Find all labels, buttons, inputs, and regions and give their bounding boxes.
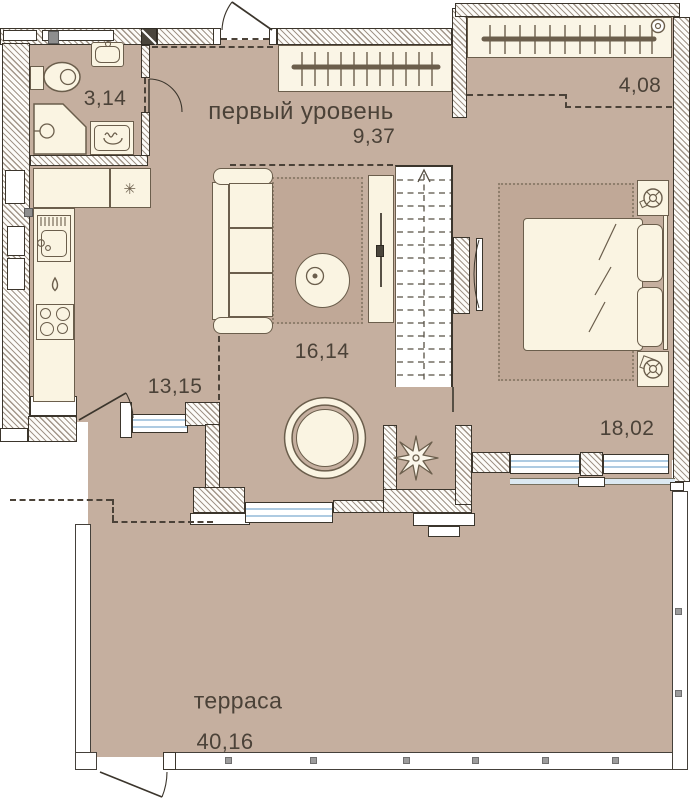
railing-post	[612, 757, 619, 764]
zone-boundary-dashed	[152, 46, 273, 48]
sofa-icon	[213, 317, 273, 334]
door-jamb	[120, 402, 132, 438]
nightstand-icon	[637, 351, 669, 387]
shaft-box	[7, 226, 25, 256]
door-jamb	[269, 28, 277, 45]
wall	[453, 237, 470, 314]
wall	[141, 112, 150, 156]
sink-bowl	[41, 230, 67, 257]
washer-inner	[94, 125, 130, 151]
toilet-tank	[30, 66, 44, 90]
nightstand-icon	[637, 180, 669, 216]
wall	[277, 28, 452, 45]
entry-door-swing-icon	[222, 2, 272, 30]
floor-plan: первый уровень 9,37 3,14 4,08 16,14 13,1…	[0, 0, 694, 800]
zone-boundary-dashed	[467, 94, 565, 96]
window	[510, 454, 580, 474]
area-label-bathroom: 3,14	[84, 87, 126, 111]
terrace-railing	[75, 752, 97, 770]
area-label-hall: 13,15	[148, 375, 203, 399]
coffee-table-icon	[295, 253, 350, 308]
railing-post	[542, 757, 549, 764]
wall	[673, 17, 690, 482]
railing-post	[403, 757, 410, 764]
wall-step	[413, 513, 475, 526]
shaft-box	[24, 208, 33, 217]
wall	[455, 425, 472, 505]
sofa-icon	[212, 182, 229, 320]
wall-end	[670, 482, 684, 491]
wall	[185, 402, 220, 426]
window-pier	[580, 452, 603, 476]
area-label-living: 16,14	[295, 340, 350, 364]
wall-step	[428, 526, 460, 537]
window	[245, 502, 333, 523]
wall	[333, 500, 385, 513]
wall	[30, 155, 148, 166]
wall-edge-line	[452, 387, 454, 412]
radiator-icon	[278, 45, 452, 92]
terrace-railing	[75, 524, 91, 770]
zone-boundary-dashed	[565, 106, 672, 108]
burner-icon	[56, 307, 70, 321]
tv-icon	[376, 245, 384, 257]
sofa-cushion	[229, 183, 273, 228]
shaft-box	[3, 30, 37, 41]
zone-boundary-dashed	[230, 164, 393, 166]
railing-post	[675, 608, 682, 615]
area-label-upper-hall: 9,37	[353, 125, 395, 149]
zone-boundary-dashed	[10, 499, 112, 501]
sofa-cushion	[229, 228, 273, 273]
wall	[455, 3, 680, 17]
zone-boundary-dashed	[218, 336, 220, 400]
door-jamb	[163, 752, 176, 770]
door-opening-dashed	[144, 78, 146, 112]
railing-post	[225, 757, 232, 764]
pillow-icon	[637, 224, 663, 282]
area-label-balcony: 4,08	[619, 74, 661, 98]
wall	[157, 28, 215, 45]
wall	[141, 45, 150, 78]
railing-post	[310, 757, 317, 764]
window	[132, 414, 188, 433]
wall	[28, 416, 77, 442]
wall-junction	[141, 28, 157, 45]
railing-post	[675, 690, 682, 697]
terrace-gate-swing-icon	[100, 772, 167, 797]
sofa-cushion	[229, 273, 273, 317]
kitchen-counter	[33, 168, 110, 208]
plan-title: первый уровень	[208, 98, 393, 126]
burner-icon	[57, 323, 68, 334]
wall	[472, 452, 510, 473]
room-label-terrace: терраса	[194, 688, 283, 715]
terrace-railing	[672, 491, 688, 770]
fridge-snowflake-icon: ✳	[124, 180, 137, 198]
burner-icon	[40, 322, 54, 336]
shaft-box	[7, 258, 25, 290]
area-label-terrace: 40,16	[196, 729, 253, 755]
door-leaf	[476, 238, 483, 311]
window-sill-box	[578, 477, 605, 487]
wall-step	[190, 513, 250, 525]
dining-table-icon	[296, 409, 354, 467]
area-label-bedroom: 18,02	[600, 417, 655, 441]
pillow-icon	[637, 287, 663, 347]
sink-bowl	[95, 46, 120, 63]
railing-post	[472, 757, 479, 764]
wall	[193, 487, 245, 513]
radiator-icon	[467, 17, 672, 58]
bed-icon	[523, 218, 643, 351]
stairs	[395, 165, 453, 387]
door-jamb	[213, 28, 221, 45]
burner-icon	[40, 308, 51, 319]
zone-boundary-dashed	[112, 499, 114, 521]
shaft-box	[5, 170, 25, 204]
window	[603, 454, 669, 474]
wall-step	[0, 428, 28, 442]
zone-boundary-dashed	[221, 38, 269, 40]
shaft-box	[48, 31, 59, 44]
wall	[452, 8, 467, 118]
zone-boundary-dashed	[112, 521, 213, 523]
headboard	[663, 215, 668, 350]
